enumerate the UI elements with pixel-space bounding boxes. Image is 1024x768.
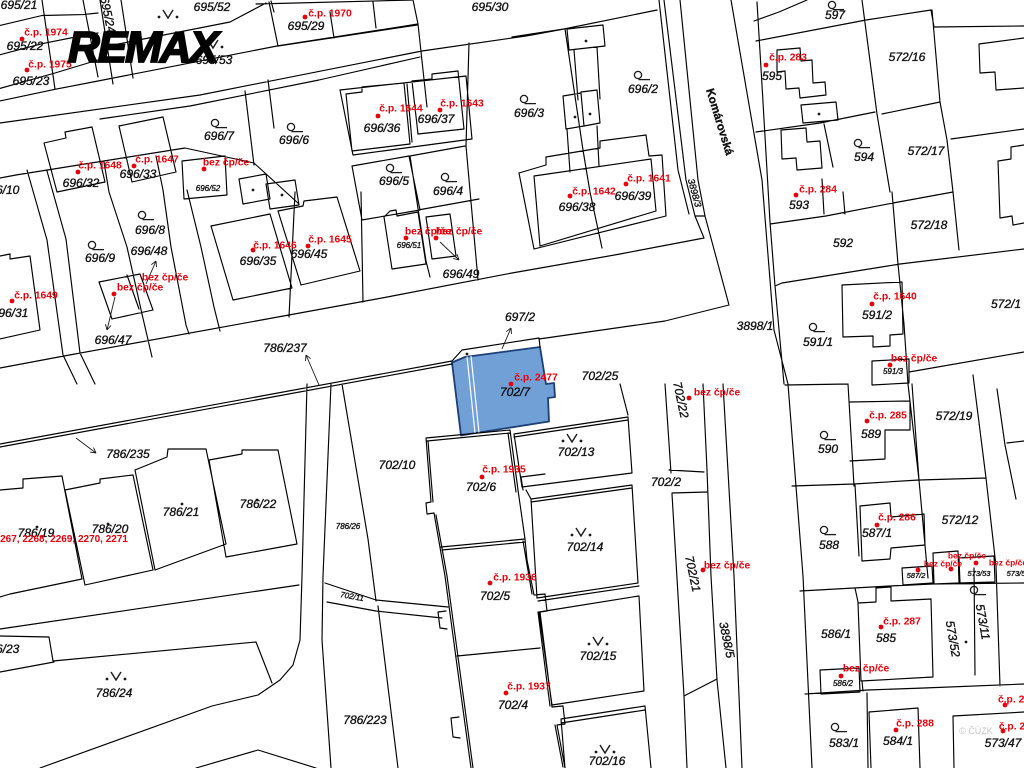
svg-text:587/2: 587/2 bbox=[907, 571, 927, 580]
svg-text:702/13: 702/13 bbox=[558, 445, 595, 459]
svg-text:696/35: 696/35 bbox=[240, 254, 277, 268]
svg-text:č.p. 286: č.p. 286 bbox=[878, 513, 916, 524]
svg-text:č.p. 1936: č.p. 1936 bbox=[493, 573, 537, 584]
svg-text:695/52: 695/52 bbox=[194, 0, 231, 14]
svg-text:696/33: 696/33 bbox=[120, 167, 157, 181]
svg-text:573/5: 573/5 bbox=[1007, 569, 1024, 578]
svg-text:592: 592 bbox=[833, 236, 853, 250]
svg-text:587/1: 587/1 bbox=[862, 526, 892, 540]
svg-text:bez čp/če: bez čp/če bbox=[843, 664, 890, 675]
svg-text:591/1: 591/1 bbox=[803, 335, 833, 349]
svg-text:702/5: 702/5 bbox=[480, 589, 510, 603]
svg-text:č.p. 285: č.p. 285 bbox=[869, 411, 907, 422]
svg-text:č.p. 28: č.p. 28 bbox=[998, 695, 1024, 706]
svg-text:696/10: 696/10 bbox=[0, 183, 20, 197]
svg-text:696/52: 696/52 bbox=[196, 184, 221, 193]
svg-text:702/16: 702/16 bbox=[589, 754, 626, 768]
svg-text:č.p. 283: č.p. 283 bbox=[769, 53, 807, 64]
svg-text:786/24: 786/24 bbox=[96, 686, 133, 700]
svg-text:bez čp/če: bez čp/če bbox=[203, 158, 250, 169]
svg-text:702/15: 702/15 bbox=[580, 649, 617, 663]
svg-text:702/10: 702/10 bbox=[379, 458, 416, 472]
svg-text:593: 593 bbox=[789, 198, 809, 212]
svg-text:786/23: 786/23 bbox=[0, 642, 20, 656]
svg-text:585: 585 bbox=[876, 631, 896, 645]
svg-text:č.p. 1641: č.p. 1641 bbox=[627, 174, 671, 185]
svg-text:bez čp/če: bez čp/če bbox=[924, 558, 963, 568]
svg-text:702/7: 702/7 bbox=[500, 385, 531, 399]
svg-text:2267, 2268, 2269, 2270, 2271: 2267, 2268, 2269, 2270, 2271 bbox=[0, 534, 128, 545]
svg-text:597: 597 bbox=[825, 8, 846, 22]
svg-text:č.p. 1645: č.p. 1645 bbox=[308, 235, 352, 246]
svg-text:bez čp/če: bez čp/če bbox=[694, 388, 741, 399]
svg-text:č.p. 2477: č.p. 2477 bbox=[514, 373, 558, 384]
svg-text:č.p. 1646: č.p. 1646 bbox=[253, 241, 297, 252]
svg-text:786/21: 786/21 bbox=[163, 505, 200, 519]
svg-text:696/39: 696/39 bbox=[615, 189, 652, 203]
svg-text:594: 594 bbox=[854, 150, 874, 164]
svg-text:786/22: 786/22 bbox=[240, 497, 277, 511]
svg-text:č.p. 1640: č.p. 1640 bbox=[873, 292, 917, 303]
svg-text:696/3: 696/3 bbox=[514, 106, 544, 120]
svg-text:591/2: 591/2 bbox=[862, 308, 892, 322]
svg-text:č.p. 1642: č.p. 1642 bbox=[572, 187, 616, 198]
svg-text:697/2: 697/2 bbox=[505, 310, 535, 324]
svg-text:572/12: 572/12 bbox=[942, 513, 979, 527]
svg-text:696/49: 696/49 bbox=[443, 267, 480, 281]
svg-text:č.p. 284: č.p. 284 bbox=[799, 185, 837, 196]
svg-text:696/6: 696/6 bbox=[279, 133, 309, 147]
svg-text:695/30: 695/30 bbox=[472, 0, 509, 14]
svg-text:573/53: 573/53 bbox=[968, 569, 992, 578]
svg-text:595: 595 bbox=[762, 69, 782, 83]
svg-text:696/37: 696/37 bbox=[418, 112, 456, 126]
svg-text:583/1: 583/1 bbox=[829, 736, 859, 750]
svg-text:702/25: 702/25 bbox=[582, 369, 619, 383]
svg-text:696/47: 696/47 bbox=[95, 333, 133, 347]
svg-text:3898/1: 3898/1 bbox=[737, 319, 774, 333]
svg-text:č.p. 287: č.p. 287 bbox=[883, 617, 921, 628]
svg-text:573/47: 573/47 bbox=[985, 736, 1023, 750]
svg-text:č.p. 1970: č.p. 1970 bbox=[308, 9, 352, 20]
svg-text:589: 589 bbox=[861, 427, 881, 441]
svg-text:695/29: 695/29 bbox=[288, 19, 325, 33]
svg-text:bez čp/če: bez čp/če bbox=[436, 227, 483, 238]
svg-text:586/2: 586/2 bbox=[833, 679, 854, 688]
svg-text:695/21: 695/21 bbox=[1, 0, 38, 12]
svg-text:786/26: 786/26 bbox=[336, 522, 361, 531]
svg-text:č.p. 1649: č.p. 1649 bbox=[14, 291, 58, 302]
svg-text:590: 590 bbox=[818, 442, 838, 456]
svg-text:č.p. 288: č.p. 288 bbox=[896, 719, 934, 730]
svg-text:572/1: 572/1 bbox=[991, 297, 1021, 311]
svg-text:786/237: 786/237 bbox=[263, 341, 308, 355]
svg-text:696/36: 696/36 bbox=[364, 121, 401, 135]
svg-text:696/51: 696/51 bbox=[397, 241, 421, 250]
svg-text:586/1: 586/1 bbox=[821, 627, 851, 641]
svg-text:bez čp/če: bez čp/če bbox=[891, 354, 938, 365]
svg-text:702/6: 702/6 bbox=[466, 480, 496, 494]
svg-text:702/2: 702/2 bbox=[651, 475, 681, 489]
svg-text:REMAX: REMAX bbox=[68, 23, 222, 72]
svg-text:č.p. 1647: č.p. 1647 bbox=[135, 155, 179, 166]
svg-text:702/14: 702/14 bbox=[567, 540, 604, 554]
svg-text:bez čp/če: bez čp/če bbox=[989, 557, 1024, 567]
svg-text:591/3: 591/3 bbox=[883, 367, 904, 376]
svg-text:č.p. 1935: č.p. 1935 bbox=[482, 465, 526, 476]
svg-text:696/9: 696/9 bbox=[85, 251, 115, 265]
svg-text:588: 588 bbox=[819, 538, 839, 552]
svg-text:© ČÚZK: © ČÚZK bbox=[959, 726, 993, 736]
svg-text:696/2: 696/2 bbox=[628, 82, 658, 96]
svg-text:696/48: 696/48 bbox=[131, 244, 168, 258]
svg-text:584/1: 584/1 bbox=[883, 734, 913, 748]
svg-text:572/19: 572/19 bbox=[936, 409, 973, 423]
svg-text:696/38: 696/38 bbox=[559, 200, 596, 214]
svg-text:č.p. 1644: č.p. 1644 bbox=[379, 104, 423, 115]
svg-text:572/17: 572/17 bbox=[908, 144, 946, 158]
svg-text:č.p. 1974: č.p. 1974 bbox=[24, 28, 68, 39]
svg-text:č.p. 1975: č.p. 1975 bbox=[28, 60, 72, 71]
svg-text:695/22: 695/22 bbox=[7, 39, 44, 53]
svg-text:572/16: 572/16 bbox=[889, 50, 926, 64]
svg-text:786/223: 786/223 bbox=[343, 713, 387, 727]
svg-text:č.p. 1643: č.p. 1643 bbox=[440, 99, 484, 110]
svg-text:696/5: 696/5 bbox=[379, 174, 409, 188]
svg-text:696/8: 696/8 bbox=[135, 223, 165, 237]
svg-text:696/31: 696/31 bbox=[0, 306, 28, 320]
svg-text:696/7: 696/7 bbox=[204, 129, 235, 143]
svg-text:č.p. 1937: č.p. 1937 bbox=[507, 682, 551, 693]
svg-text:bez čp/če: bez čp/če bbox=[117, 283, 164, 294]
svg-text:č.p. 1648: č.p. 1648 bbox=[78, 161, 122, 172]
svg-text:702/4: 702/4 bbox=[498, 698, 528, 712]
svg-text:696/32: 696/32 bbox=[63, 176, 100, 190]
svg-text:696/4: 696/4 bbox=[433, 184, 463, 198]
svg-text:bez čp/če: bez čp/če bbox=[704, 561, 751, 572]
svg-text:572/18: 572/18 bbox=[911, 218, 948, 232]
svg-text:786/235: 786/235 bbox=[106, 447, 150, 461]
svg-text:695/23: 695/23 bbox=[13, 74, 50, 88]
